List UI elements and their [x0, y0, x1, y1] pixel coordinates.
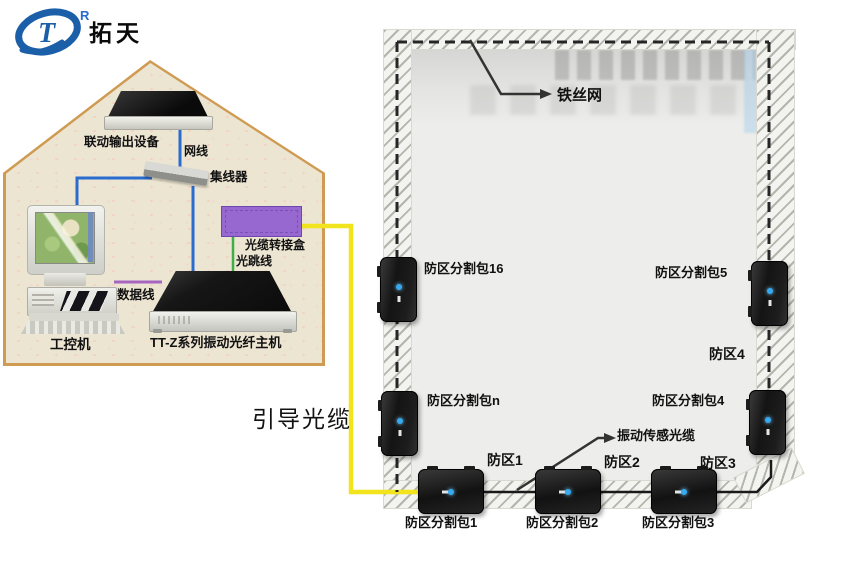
sensing-cable-label: 振动传感光缆: [617, 429, 695, 444]
host-foot-left: [153, 329, 162, 333]
led-indicator: [681, 489, 687, 495]
guide-cable-label: 引导光缆: [252, 407, 352, 433]
led-indicator: [448, 489, 454, 495]
linkage-output-device-base: [104, 116, 213, 130]
host-label: TT-Z系列振动光纤主机: [150, 336, 281, 351]
wire-mesh-label: 铁丝网: [557, 87, 602, 104]
host-device: [152, 271, 292, 313]
linkage-output-label: 联动输出设备: [84, 135, 159, 149]
pc-case-slots: [32, 292, 54, 306]
port-mark: [766, 429, 769, 435]
zone-label-2: 防区2: [604, 454, 640, 470]
fiber-jumper-label: 光跳线: [236, 255, 272, 269]
led-indicator: [397, 418, 403, 424]
zone-package-label-2: 防区分割包2: [526, 516, 598, 531]
fence-band-top: [383, 29, 796, 50]
host-foot-right: [283, 329, 292, 333]
pc-monitor-screen: [35, 212, 95, 264]
zone-package-box-2: [535, 469, 601, 514]
zone-package-label-n: 防区分割包n: [427, 394, 500, 409]
industrial-pc-label: 工控机: [50, 337, 91, 353]
pc-case-base: [29, 313, 119, 321]
zone-package-box-4: [749, 390, 786, 455]
logo-swirl-icon: T: [12, 4, 84, 58]
led-indicator: [767, 288, 773, 294]
zone-package-label-16: 防区分割包16: [424, 262, 503, 277]
zone-label-3: 防区3: [700, 455, 736, 471]
port-mark: [398, 430, 401, 436]
data-cable-label: 数据线: [117, 288, 155, 302]
zone-package-label-3: 防区分割包3: [642, 516, 714, 531]
network-cable-label: 网线: [184, 145, 208, 159]
zone-package-box-1: [418, 469, 484, 514]
host-device-vent: [158, 316, 190, 324]
zone-package-box-5: [751, 261, 788, 326]
pc-keyboard: [21, 321, 125, 334]
pc-monitor-stand: [44, 273, 86, 286]
svg-text:T: T: [38, 18, 57, 49]
zone-label-4: 防区4: [709, 346, 745, 362]
junction-box-label: 光缆转接盒: [245, 239, 305, 253]
brand-name: 拓天: [89, 21, 143, 47]
zone-package-label-4: 防区分割包4: [652, 394, 724, 409]
pc-case-vent: [60, 291, 108, 311]
zone-package-box-3: [651, 469, 717, 514]
linkage-output-device: [108, 91, 208, 117]
zone-package-box-16: [380, 257, 417, 322]
port-mark: [768, 300, 771, 306]
led-indicator: [765, 417, 771, 423]
led-indicator: [565, 489, 571, 495]
led-indicator: [396, 284, 402, 290]
registered-mark: R: [80, 9, 89, 24]
pc-monitor-toolbar: [88, 212, 93, 262]
port-mark: [397, 296, 400, 302]
zone-package-label-5: 防区分割包5: [655, 266, 727, 281]
zone-label-1: 防区1: [487, 452, 523, 468]
diagram-canvas: T R 拓天: [0, 0, 850, 563]
fiber-junction-box: [221, 206, 302, 237]
interior-photo-band: [470, 85, 750, 115]
zone-package-label-1: 防区分割包1: [405, 516, 477, 531]
interior-photo-squares: [555, 50, 755, 80]
hub-label: 集线器: [210, 170, 248, 184]
zone-package-box-n: [381, 391, 418, 456]
